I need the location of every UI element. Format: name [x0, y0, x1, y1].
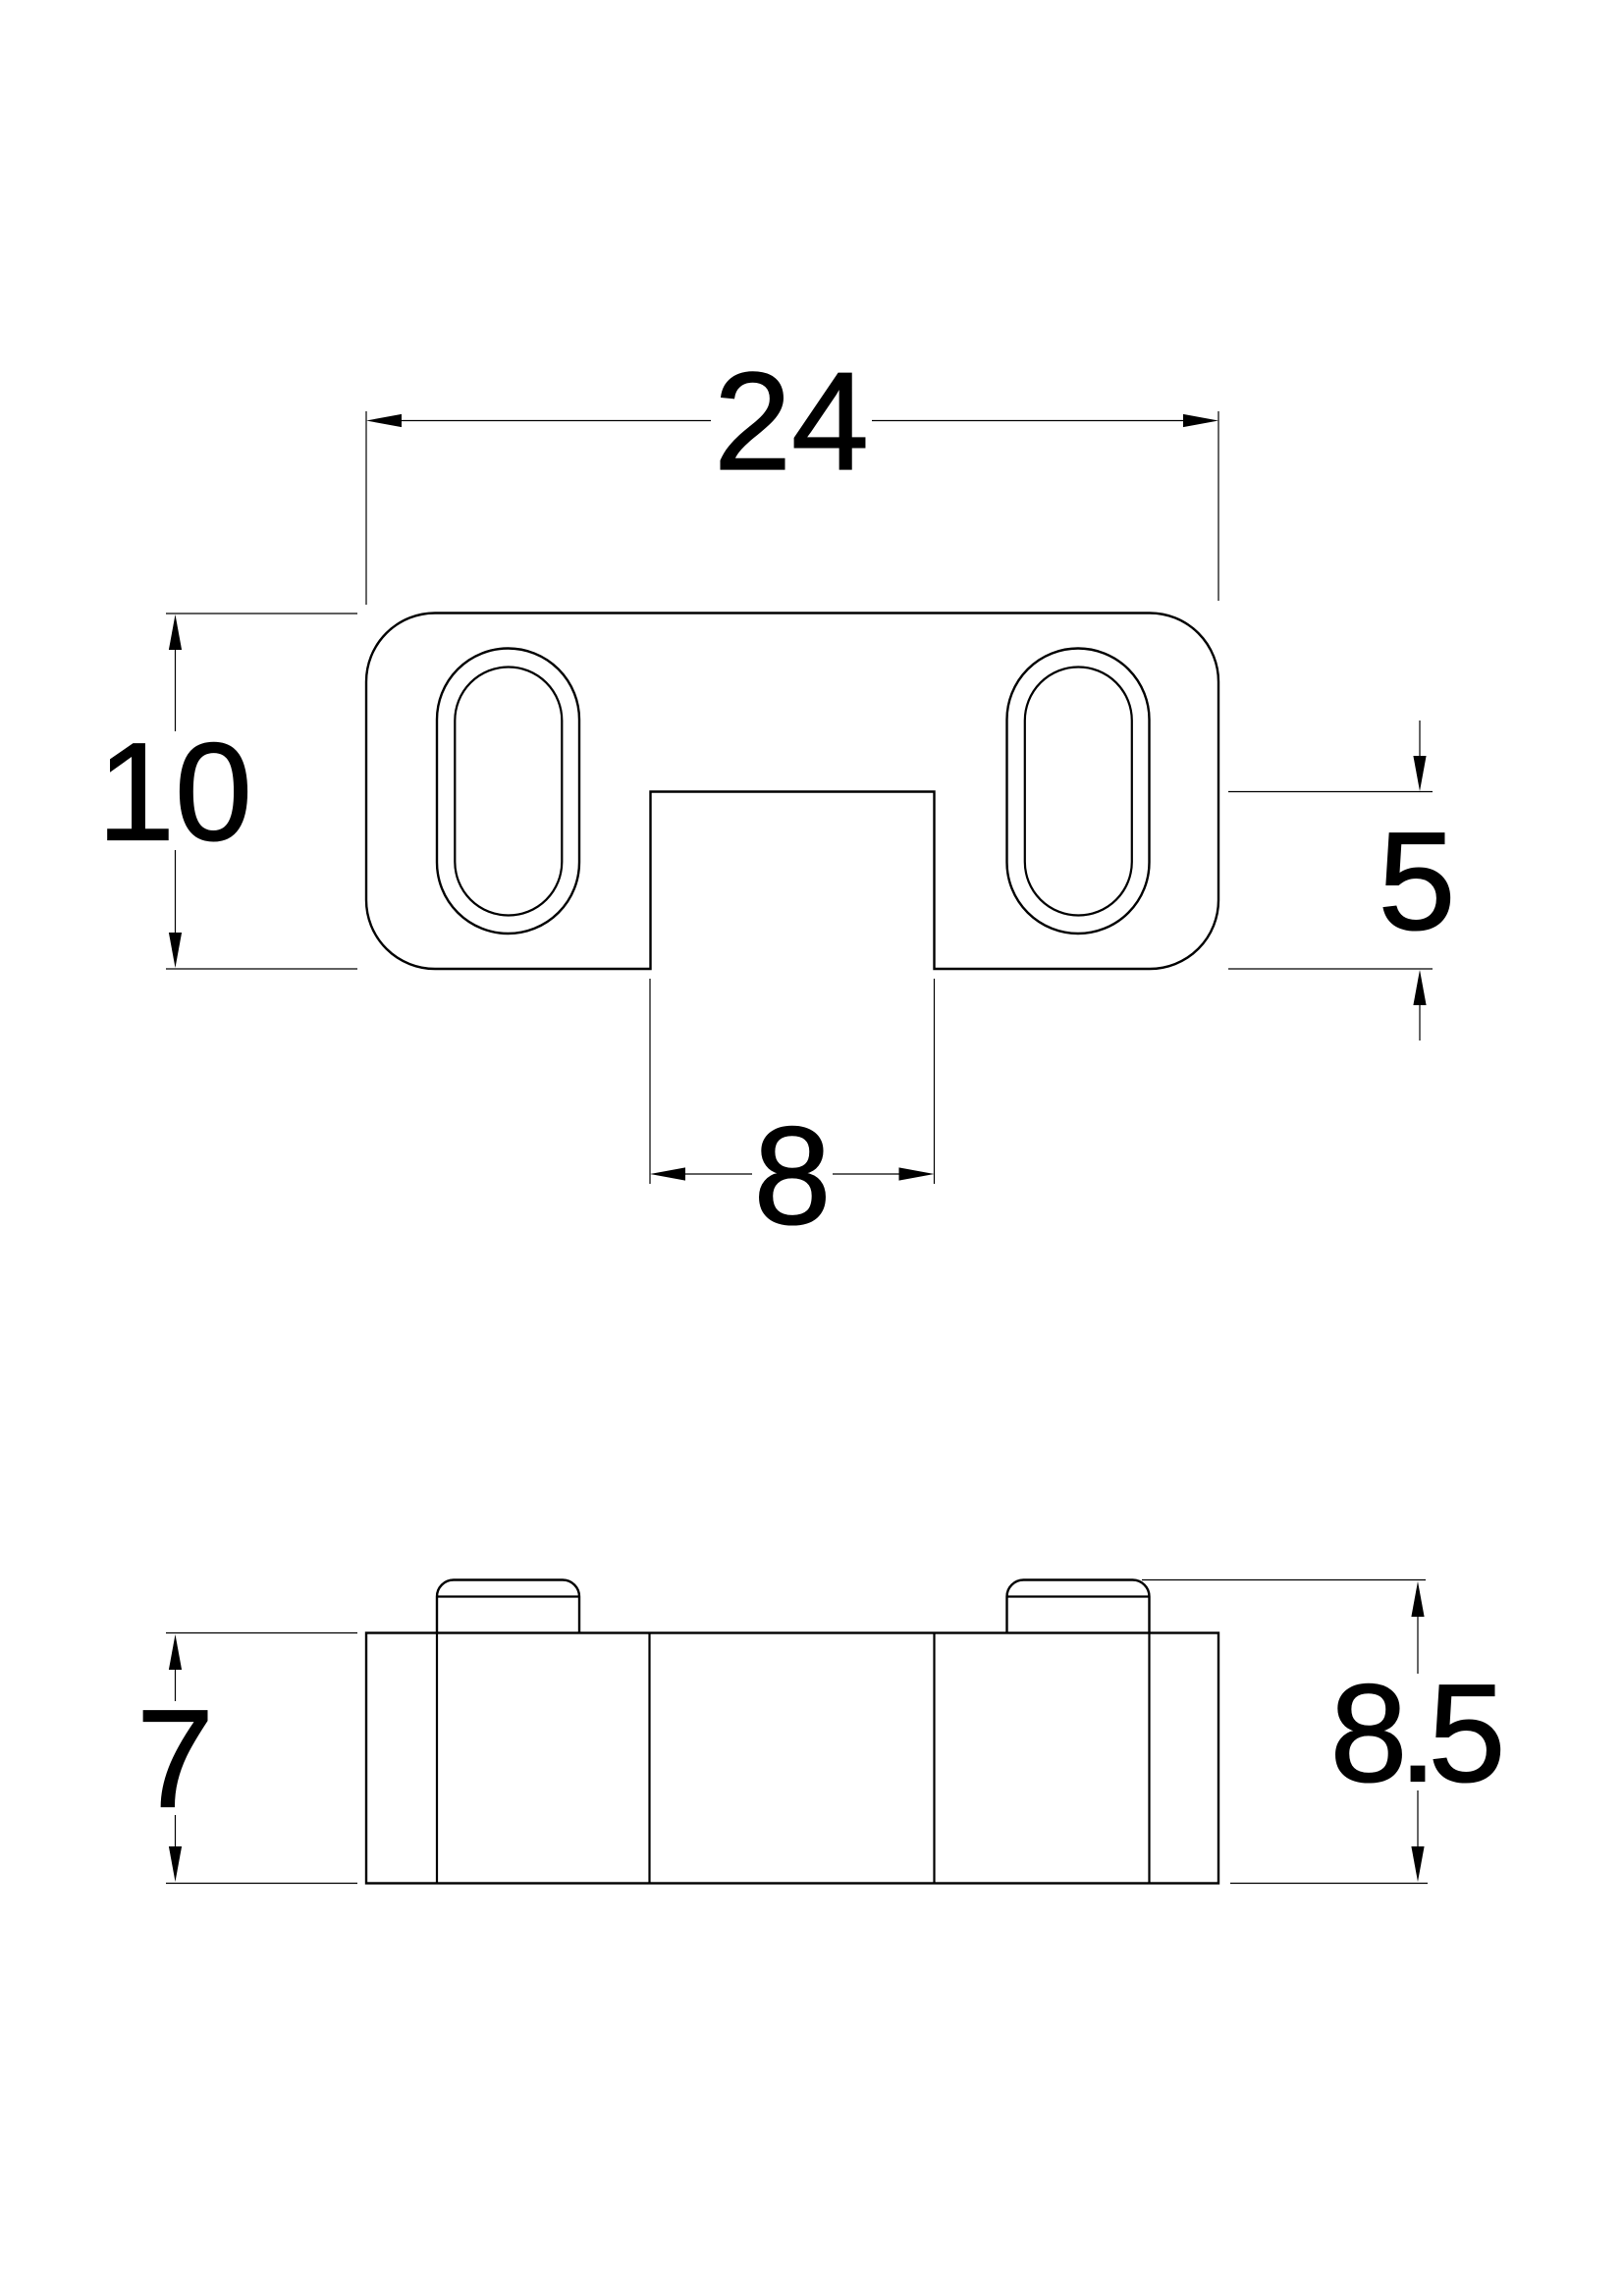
svg-text:7: 7 — [136, 1682, 214, 1838]
svg-text:10: 10 — [97, 715, 252, 871]
svg-text:5: 5 — [1379, 804, 1456, 960]
svg-text:24: 24 — [714, 344, 869, 500]
svg-text:8: 8 — [754, 1098, 832, 1255]
svg-text:8.5: 8.5 — [1330, 1656, 1506, 1812]
